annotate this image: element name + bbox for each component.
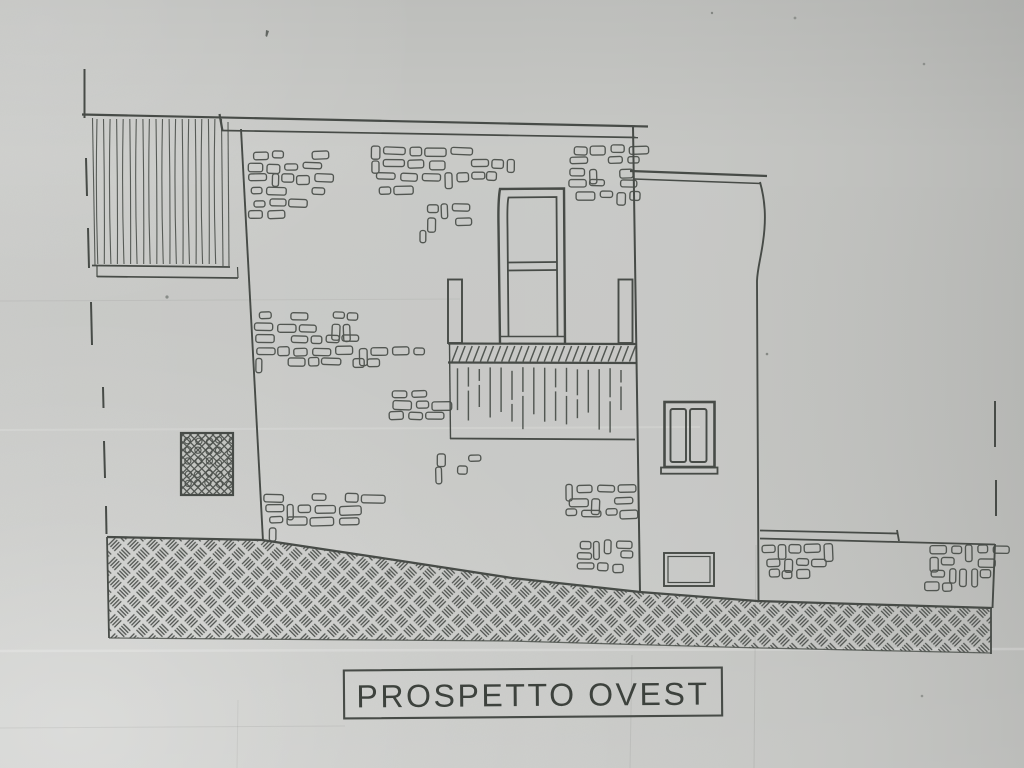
- svg-text:PROSPETTO OVEST: PROSPETTO OVEST: [356, 676, 709, 715]
